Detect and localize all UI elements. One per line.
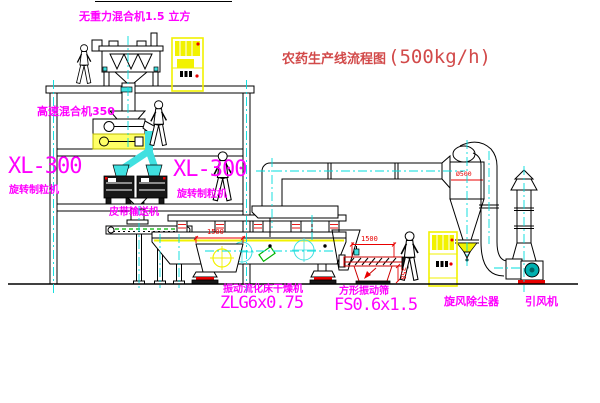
- label-granulator-right-name: 旋转制粒机: [177, 190, 227, 200]
- title-capacity: (500kg/h): [388, 46, 491, 68]
- person-top-floor: [77, 45, 91, 84]
- fluid-bed-dryer: [152, 215, 360, 284]
- dim-cyclone-diameter: Ø500: [456, 171, 472, 178]
- label-granulator-right-model: XL-300: [173, 159, 246, 181]
- dim-dryer-inlet: 1500: [207, 229, 224, 236]
- label-granulator-left-model: XL-300: [8, 156, 81, 178]
- gravity-free-mixer: [92, 33, 163, 111]
- title-chinese: 农药生产线流程图: [282, 48, 386, 67]
- spring-mounts: [177, 221, 339, 232]
- induced-draft-fan: [506, 259, 545, 284]
- label-belt-conveyor: 皮带输送机: [109, 208, 159, 218]
- label-high-speed-mixer: 高速混合机350: [37, 106, 115, 117]
- label-granulator-left-name: 旋转制粒机: [9, 186, 59, 196]
- label-gravity-mixer: 无重力混合机1.5 立方: [79, 11, 190, 22]
- exhaust-duct: [252, 163, 447, 237]
- control-cabinet-top: [172, 38, 203, 91]
- label-cyclone: 旋风除尘器: [444, 296, 499, 307]
- flow-diagram-canvas: 农药生产线流程图 (500kg/h) 无重力混合机1.5 立方 高速混合机350…: [0, 0, 600, 403]
- dim-screen-height: 350: [399, 267, 406, 280]
- label-dryer-model: ZLG6x0.75: [220, 295, 303, 312]
- control-cabinet-right: [429, 232, 457, 286]
- label-screen-model: FS0.6x1.5: [334, 297, 417, 314]
- diagram-title: 农药生产线流程图 (500kg/h): [282, 46, 491, 68]
- dim-screen-length: 1500: [361, 236, 378, 243]
- label-fan: 引风机: [525, 296, 558, 307]
- person-second-floor: [150, 101, 166, 146]
